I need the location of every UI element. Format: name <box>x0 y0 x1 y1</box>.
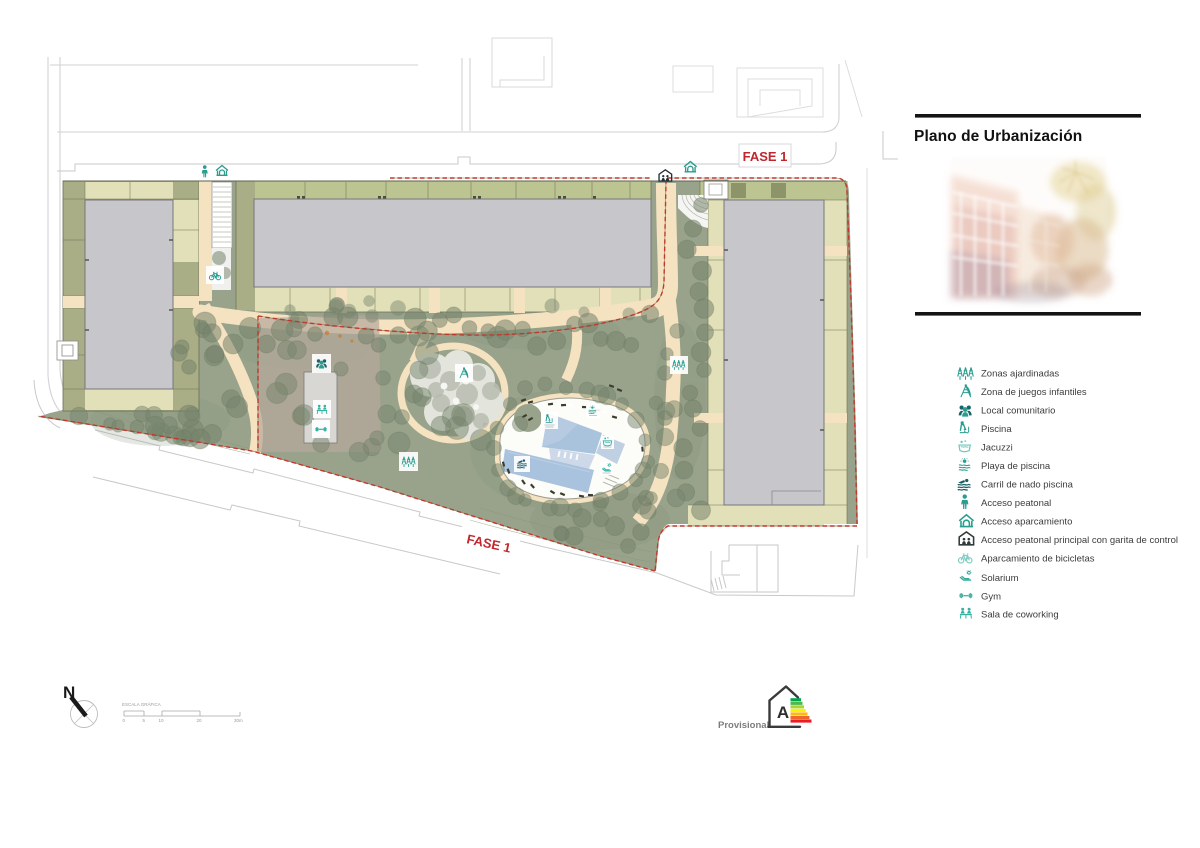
svg-text:Zona de juegos infantiles: Zona de juegos infantiles <box>981 387 1087 398</box>
svg-text:ESCALA GRÁFICA: ESCALA GRÁFICA <box>122 701 161 707</box>
svg-text:Sala de coworking: Sala de coworking <box>981 610 1059 621</box>
svg-text:Zonas ajardinadas: Zonas ajardinadas <box>981 369 1059 380</box>
svg-text:30m: 30m <box>234 718 243 723</box>
svg-text:Local comunitario: Local comunitario <box>981 406 1055 417</box>
svg-text:Jacuzzi: Jacuzzi <box>981 443 1013 454</box>
svg-text:10: 10 <box>159 718 165 723</box>
svg-text:Carril de nado piscina: Carril de nado piscina <box>981 480 1074 491</box>
svg-text:Provisional: Provisional <box>718 720 769 731</box>
svg-text:Acceso aparcamiento: Acceso aparcamiento <box>981 517 1072 528</box>
svg-text:Solarium: Solarium <box>981 573 1019 584</box>
svg-text:Aparcamiento de bicicletas: Aparcamiento de bicicletas <box>981 554 1095 565</box>
svg-text:Piscina: Piscina <box>981 424 1012 435</box>
svg-text:N: N <box>63 683 75 702</box>
svg-text:Gym: Gym <box>981 592 1001 603</box>
svg-text:FASE 1: FASE 1 <box>743 149 788 164</box>
svg-text:A: A <box>777 703 789 722</box>
svg-text:20: 20 <box>197 718 203 723</box>
svg-text:0: 0 <box>123 718 126 723</box>
svg-text:5: 5 <box>143 718 146 723</box>
svg-text:Acceso peatonal: Acceso peatonal <box>981 498 1051 509</box>
svg-text:Plano de Urbanización: Plano de Urbanización <box>914 128 1082 145</box>
svg-text:Acceso peatonal principal con: Acceso peatonal principal con garita de … <box>981 535 1178 546</box>
svg-text:Playa de piscina: Playa de piscina <box>981 461 1051 472</box>
